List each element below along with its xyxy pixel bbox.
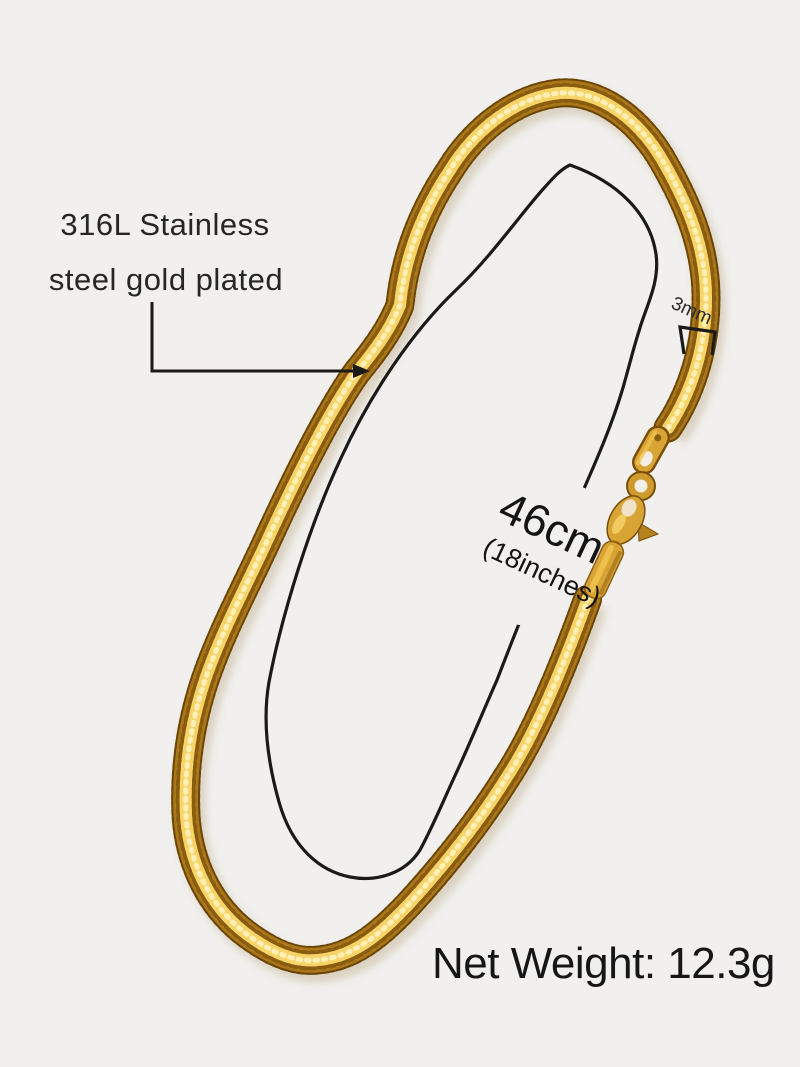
necklace-graphic [0,0,800,1067]
material-label-line2: steel gold plated [38,264,294,297]
material-label-line1: 316L Stainless [55,209,275,242]
product-photo-canvas: 316L Stainless steel gold plated 3mm 46c… [0,0,800,1067]
clasp-assembly [581,423,672,602]
connector-link [629,423,672,477]
clasp-ring-hole [635,480,648,493]
material-callout-line [152,302,370,378]
net-weight-label: Net Weight: 12.3g [432,941,775,987]
